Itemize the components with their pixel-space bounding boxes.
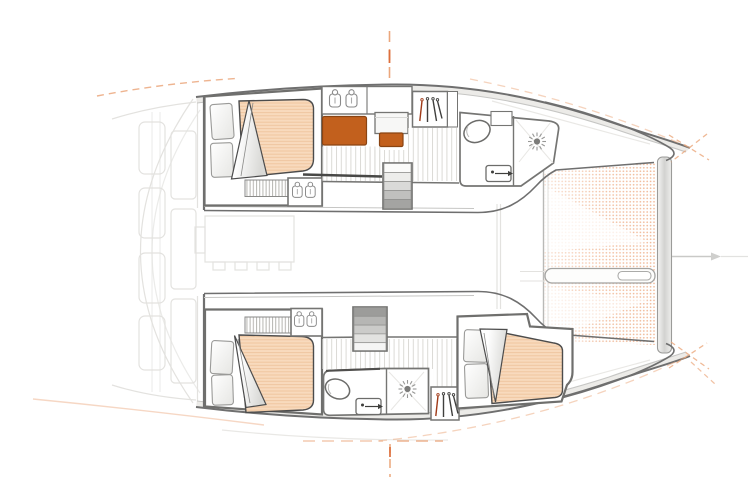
cockpit-table-ghost (195, 216, 294, 270)
floor-plan-canvas (0, 0, 750, 500)
floor-planks (408, 128, 458, 181)
pillow (211, 375, 233, 406)
bowsprit-roller (618, 272, 651, 281)
toilet-icon (486, 166, 513, 182)
companionway-stairs (383, 163, 412, 209)
floor-planks (322, 339, 458, 369)
galley-module-orange (323, 117, 367, 146)
nav-seat-orange (380, 133, 404, 147)
twin-basin-unit (288, 178, 322, 206)
davit-ghost (139, 112, 165, 392)
pillow (210, 340, 234, 374)
pillow (210, 143, 233, 178)
port-aft-cabin (205, 89, 323, 207)
twin-basin-unit (291, 309, 322, 337)
floor-planks (433, 369, 458, 387)
starboard-bathroom (322, 369, 428, 416)
hanging-locker (431, 387, 459, 420)
companionway-stairs (353, 307, 387, 351)
toilet-icon (356, 399, 383, 415)
floor-plan-page (0, 0, 750, 500)
centerline-bottom-cross (303, 441, 443, 477)
starboard-aft-cabin (205, 309, 322, 415)
bow-cross-bottom (669, 342, 715, 384)
cockpit-bench-ghost (171, 131, 196, 383)
starboard-forward-cabin (458, 314, 573, 409)
port-galley (303, 87, 459, 210)
centerline-right-arrow (672, 253, 748, 261)
pillow (464, 364, 488, 399)
step-slats (245, 317, 291, 333)
hanging-locker (413, 92, 448, 128)
sheer-guide-top-left (97, 79, 236, 97)
transom-ghost-arc (141, 99, 194, 403)
nav-module (375, 113, 408, 134)
pillow (210, 103, 234, 139)
forward-crossbeam (658, 157, 672, 353)
